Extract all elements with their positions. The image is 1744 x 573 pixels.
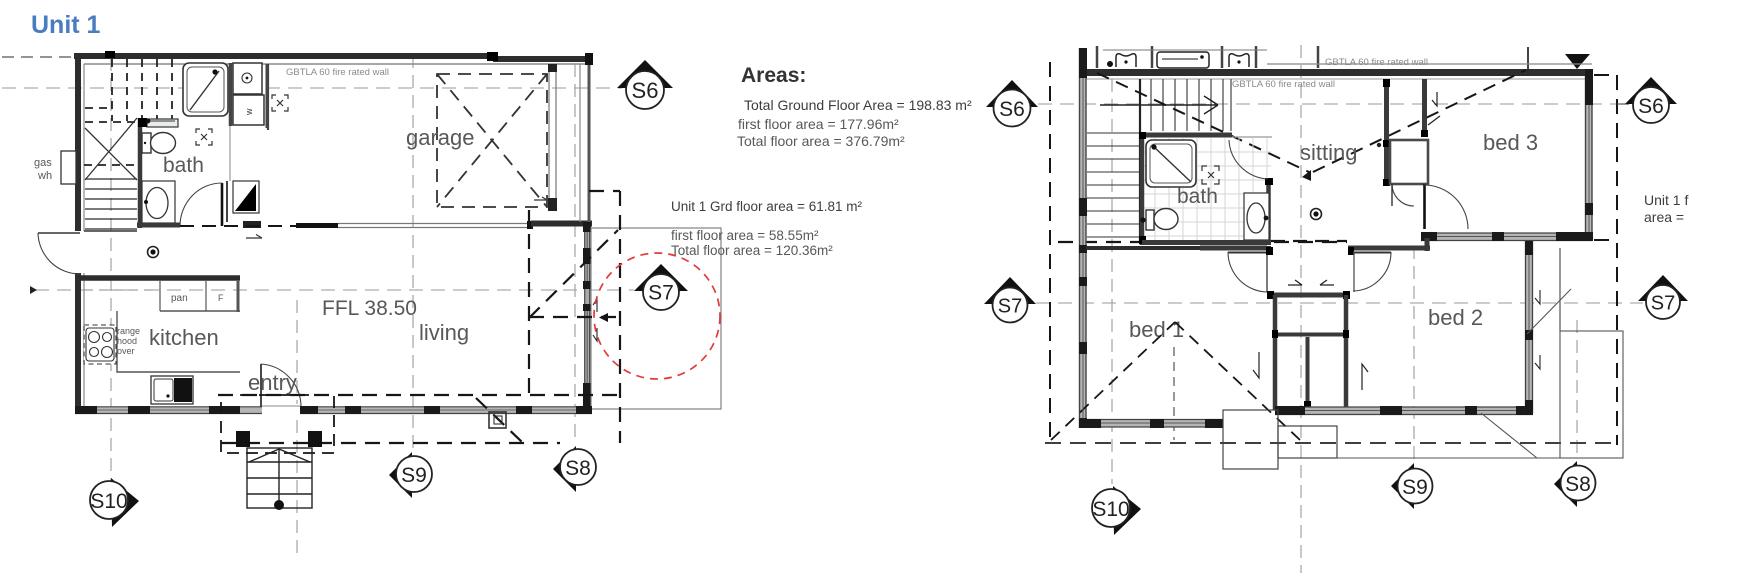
svg-text:bed 1: bed 1 — [1129, 317, 1184, 342]
svg-text:S6: S6 — [632, 78, 659, 103]
svg-text:gas: gas — [34, 157, 52, 169]
svg-text:F: F — [218, 293, 224, 303]
svg-text:S7: S7 — [998, 296, 1022, 318]
svg-text:S9: S9 — [1402, 476, 1428, 499]
svg-text:entry: entry — [248, 370, 297, 395]
svg-text:Total floor area = 376.79m²: Total floor area = 376.79m² — [737, 133, 905, 149]
svg-text:S7: S7 — [648, 282, 674, 305]
svg-text:over: over — [117, 346, 135, 356]
svg-text:sitting: sitting — [1300, 140, 1357, 165]
svg-text:garage: garage — [406, 125, 475, 150]
svg-text:GBTLA 60 fire rated wall: GBTLA 60 fire rated wall — [286, 67, 389, 78]
svg-text:S10: S10 — [90, 490, 127, 513]
svg-text:wh: wh — [37, 170, 52, 182]
svg-text:S6: S6 — [1638, 95, 1664, 118]
svg-text:Total floor area = 120.36m²: Total floor area = 120.36m² — [671, 243, 833, 258]
svg-text:FFL 38.50: FFL 38.50 — [322, 297, 417, 320]
svg-text:range: range — [117, 326, 140, 336]
svg-text:S6: S6 — [999, 98, 1025, 121]
svg-text:bath: bath — [163, 154, 204, 177]
svg-text:hood: hood — [117, 336, 137, 346]
svg-text:bed 3: bed 3 — [1483, 130, 1538, 155]
svg-text:w: w — [244, 108, 254, 116]
svg-text:kitchen: kitchen — [149, 325, 219, 350]
svg-text:Unit 1: Unit 1 — [31, 11, 101, 39]
svg-text:S7: S7 — [1651, 293, 1675, 315]
svg-text:living: living — [419, 320, 469, 345]
svg-text:Unit 1 Grd floor area = 61.81: Unit 1 Grd floor area = 61.81 m² — [671, 199, 862, 214]
svg-text:S8: S8 — [565, 457, 591, 480]
svg-text:first floor area = 58.55m²: first floor area = 58.55m² — [671, 228, 819, 243]
svg-text:GBTLA 60 fire rated wall: GBTLA 60 fire rated wall — [1232, 79, 1335, 90]
svg-text:S10: S10 — [1092, 498, 1129, 521]
svg-text:Total Ground Floor Area = 198.: Total Ground Floor Area = 198.83 m² — [744, 97, 972, 113]
svg-text:bed 2: bed 2 — [1428, 305, 1483, 330]
svg-text:Areas:: Areas: — [741, 64, 806, 87]
svg-text:S9: S9 — [401, 464, 427, 487]
svg-text:pan: pan — [171, 293, 188, 304]
svg-text:first floor area = 177.96m²: first floor area = 177.96m² — [738, 116, 899, 132]
svg-text:S8: S8 — [1565, 473, 1591, 496]
svg-text:bath: bath — [1177, 185, 1218, 208]
svg-text:Unit 1 f: Unit 1 f — [1644, 192, 1688, 208]
svg-text:GBTLA 60 fire rated wall: GBTLA 60 fire rated wall — [1325, 57, 1428, 68]
svg-text:area =: area = — [1644, 209, 1684, 225]
